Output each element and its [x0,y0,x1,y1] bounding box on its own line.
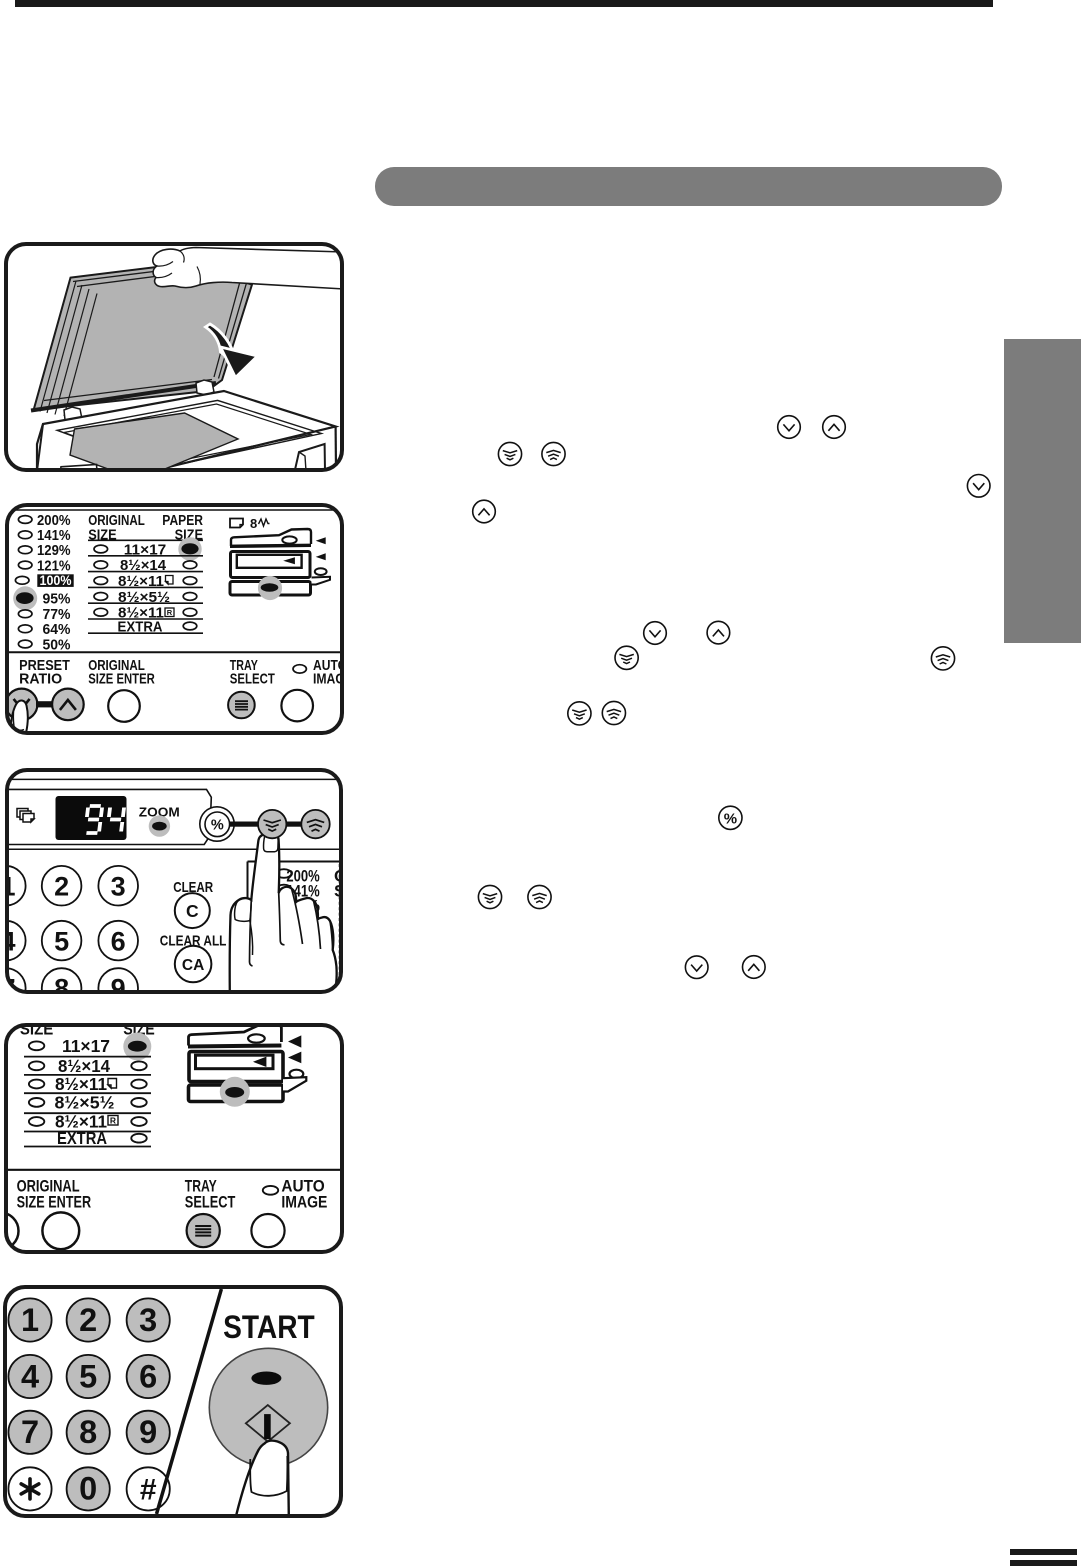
svg-text:95%: 95% [43,591,71,608]
svg-text:5: 5 [54,926,69,956]
svg-text:50%: 50% [43,636,71,653]
svg-text:1: 1 [21,1302,39,1338]
svg-text:9: 9 [111,974,126,1004]
svg-text:SIZE ENTER: SIZE ENTER [17,1192,92,1211]
svg-text:8: 8 [250,516,257,531]
svg-text:SELECT: SELECT [230,670,275,687]
svg-text:EXTRA: EXTRA [57,1128,107,1148]
svg-text:R: R [167,608,173,617]
svg-text:8½×14: 8½×14 [58,1056,110,1076]
svg-text:SIZE ENTER: SIZE ENTER [88,670,155,687]
svg-text:100%: 100% [40,573,72,588]
svg-text:SIZE: SIZE [20,1020,53,1039]
svg-text:START: START [223,1309,315,1345]
svg-text:R: R [110,1115,116,1125]
svg-text:IMAGE: IMAGE [281,1192,327,1211]
svg-text:3: 3 [111,871,126,901]
svg-text:9: 9 [139,1414,157,1450]
svg-text:7: 7 [21,1414,39,1450]
svg-text:6: 6 [111,926,126,956]
svg-text:2: 2 [79,1302,97,1338]
svg-text:IMAGE: IMAGE [313,670,353,687]
svg-text:#: # [140,1474,157,1507]
svg-text:121%: 121% [37,557,71,574]
svg-text:%: % [724,810,737,827]
svg-text:C: C [186,901,199,921]
svg-text:CA: CA [182,957,204,974]
svg-text:5: 5 [79,1358,97,1394]
svg-text:RATIO: RATIO [19,670,62,687]
svg-text:11×17: 11×17 [62,1036,110,1056]
svg-text:8½×5½: 8½×5½ [55,1093,115,1113]
svg-text:4: 4 [21,1358,39,1394]
svg-text:%: % [211,818,224,834]
svg-text:3: 3 [139,1302,157,1338]
svg-text:0: 0 [79,1471,97,1507]
svg-text:2: 2 [54,871,69,901]
svg-text:6: 6 [139,1358,157,1394]
svg-text:8½×11: 8½×11 [55,1074,107,1094]
svg-text:SELECT: SELECT [185,1192,236,1211]
svg-text:8: 8 [54,974,69,1004]
svg-text:8: 8 [79,1414,97,1450]
